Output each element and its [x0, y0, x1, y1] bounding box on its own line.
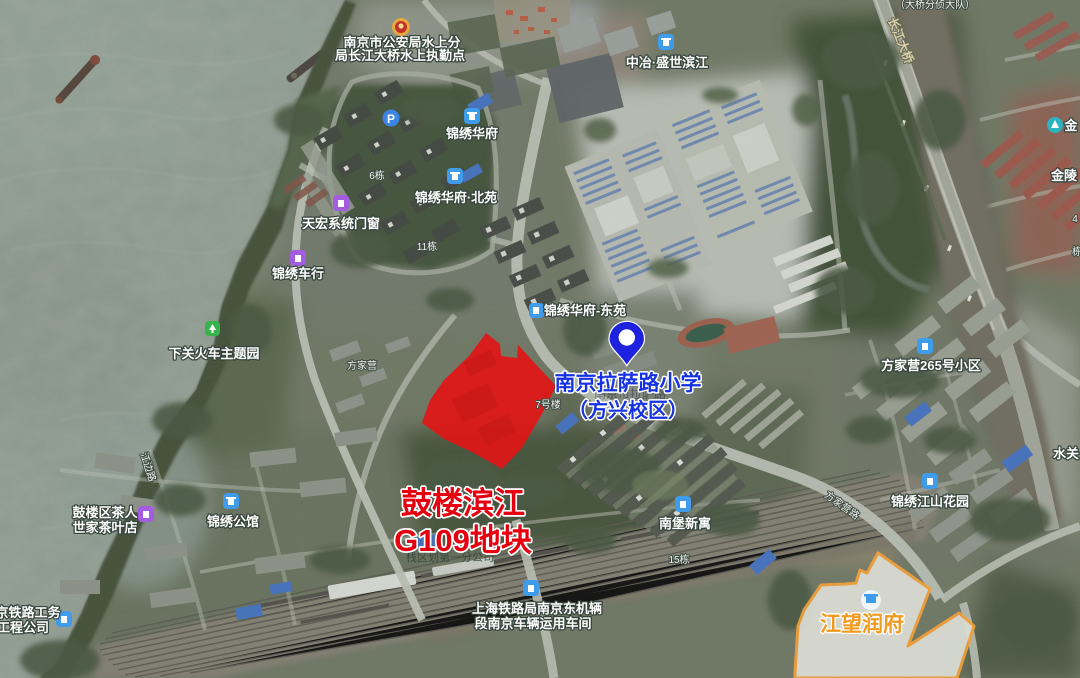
svg-text:京铁路工务: 京铁路工务: [0, 605, 61, 620]
svg-text:鼓楼区茶人: 鼓楼区茶人: [72, 505, 138, 520]
svg-text:中冶·盛世滨江: 中冶·盛世滨江: [626, 55, 708, 70]
svg-text:世家茶叶店: 世家茶叶店: [72, 520, 137, 535]
svg-text:4: 4: [1072, 214, 1078, 225]
svg-text:金陵: 金陵: [1050, 168, 1078, 183]
svg-text:锦绣江山花园: 锦绣江山花园: [891, 494, 969, 509]
svg-text:段南京车辆运用车间: 段南京车辆运用车间: [474, 616, 591, 631]
svg-text:南堡新寓: 南堡新寓: [659, 516, 711, 531]
svg-text:下关火车主题园: 下关火车主题园: [168, 346, 259, 361]
svg-text:15栋: 15栋: [668, 553, 689, 566]
svg-text:局长江大桥水上执勤点: 局长江大桥水上执勤点: [335, 48, 465, 63]
svg-text:水关: 水关: [1053, 446, 1079, 461]
svg-text:栋: 栋: [1072, 245, 1080, 258]
svg-text:6栋: 6栋: [369, 169, 385, 182]
svg-text:江望润府: 江望润府: [820, 612, 904, 636]
svg-text:锦绣公馆: 锦绣公馆: [207, 514, 259, 529]
svg-text:锦绣车行: 锦绣车行: [272, 266, 324, 281]
svg-text:11栋: 11栋: [417, 240, 437, 253]
svg-text:工程公司: 工程公司: [0, 620, 49, 635]
svg-text:南京拉萨路小学: 南京拉萨路小学: [555, 371, 702, 395]
svg-text:天宏系统门窗: 天宏系统门窗: [302, 216, 380, 231]
svg-text:锦绣华府: 锦绣华府: [446, 126, 498, 141]
svg-text:上海铁路局南京东机辆: 上海铁路局南京东机辆: [472, 601, 602, 616]
svg-text:锦绣华府-东苑: 锦绣华府-东苑: [544, 303, 626, 318]
svg-text:金: 金: [1063, 118, 1078, 133]
svg-text:方家营265号小区: 方家营265号小区: [881, 358, 981, 373]
svg-text:鼓楼滨江: 鼓楼滨江: [401, 486, 525, 521]
svg-text:（大桥分侦大队）: （大桥分侦大队）: [895, 0, 975, 11]
svg-text:（方兴校区）: （方兴校区）: [568, 398, 688, 422]
svg-text:G109地块: G109地块: [394, 523, 532, 558]
svg-text:锦绣华府·北苑: 锦绣华府·北苑: [415, 190, 497, 205]
svg-text:P: P: [387, 112, 395, 126]
svg-text:方家营: 方家营: [347, 359, 377, 372]
svg-text:7号楼: 7号楼: [535, 398, 561, 411]
